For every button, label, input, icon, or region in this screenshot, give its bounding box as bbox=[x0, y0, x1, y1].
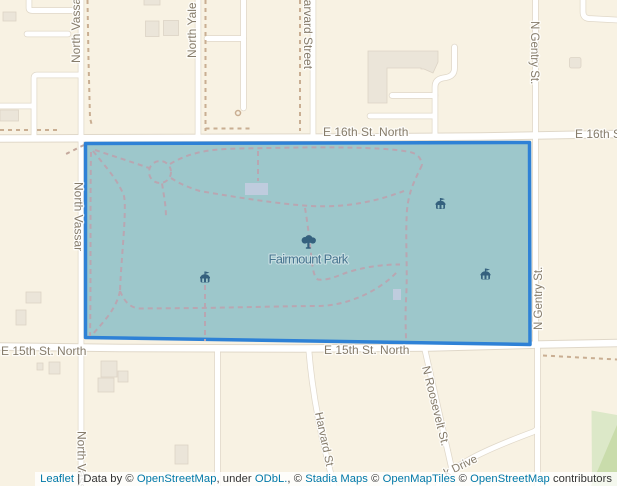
svg-text:North Vassar: North Vassar bbox=[69, 0, 83, 63]
svg-text:Fairmount Park: Fairmount Park bbox=[268, 252, 348, 267]
svg-text:North Vassar: North Vassar bbox=[72, 182, 86, 251]
svg-text:E 15th St. North: E 15th St. North bbox=[324, 343, 409, 357]
svg-text:Harvard Street: Harvard Street bbox=[301, 0, 315, 70]
svg-text:North Yale: North Yale bbox=[185, 2, 199, 58]
svg-text:E 15th St. North: E 15th St. North bbox=[1, 344, 86, 358]
svg-text:E 16th St. North: E 16th St. North bbox=[575, 127, 617, 141]
svg-text:N Gentry St.: N Gentry St. bbox=[528, 21, 540, 84]
svg-text:E 16th St. North: E 16th St. North bbox=[323, 125, 408, 139]
svg-text:N Gentry St.: N Gentry St. bbox=[533, 267, 545, 330]
